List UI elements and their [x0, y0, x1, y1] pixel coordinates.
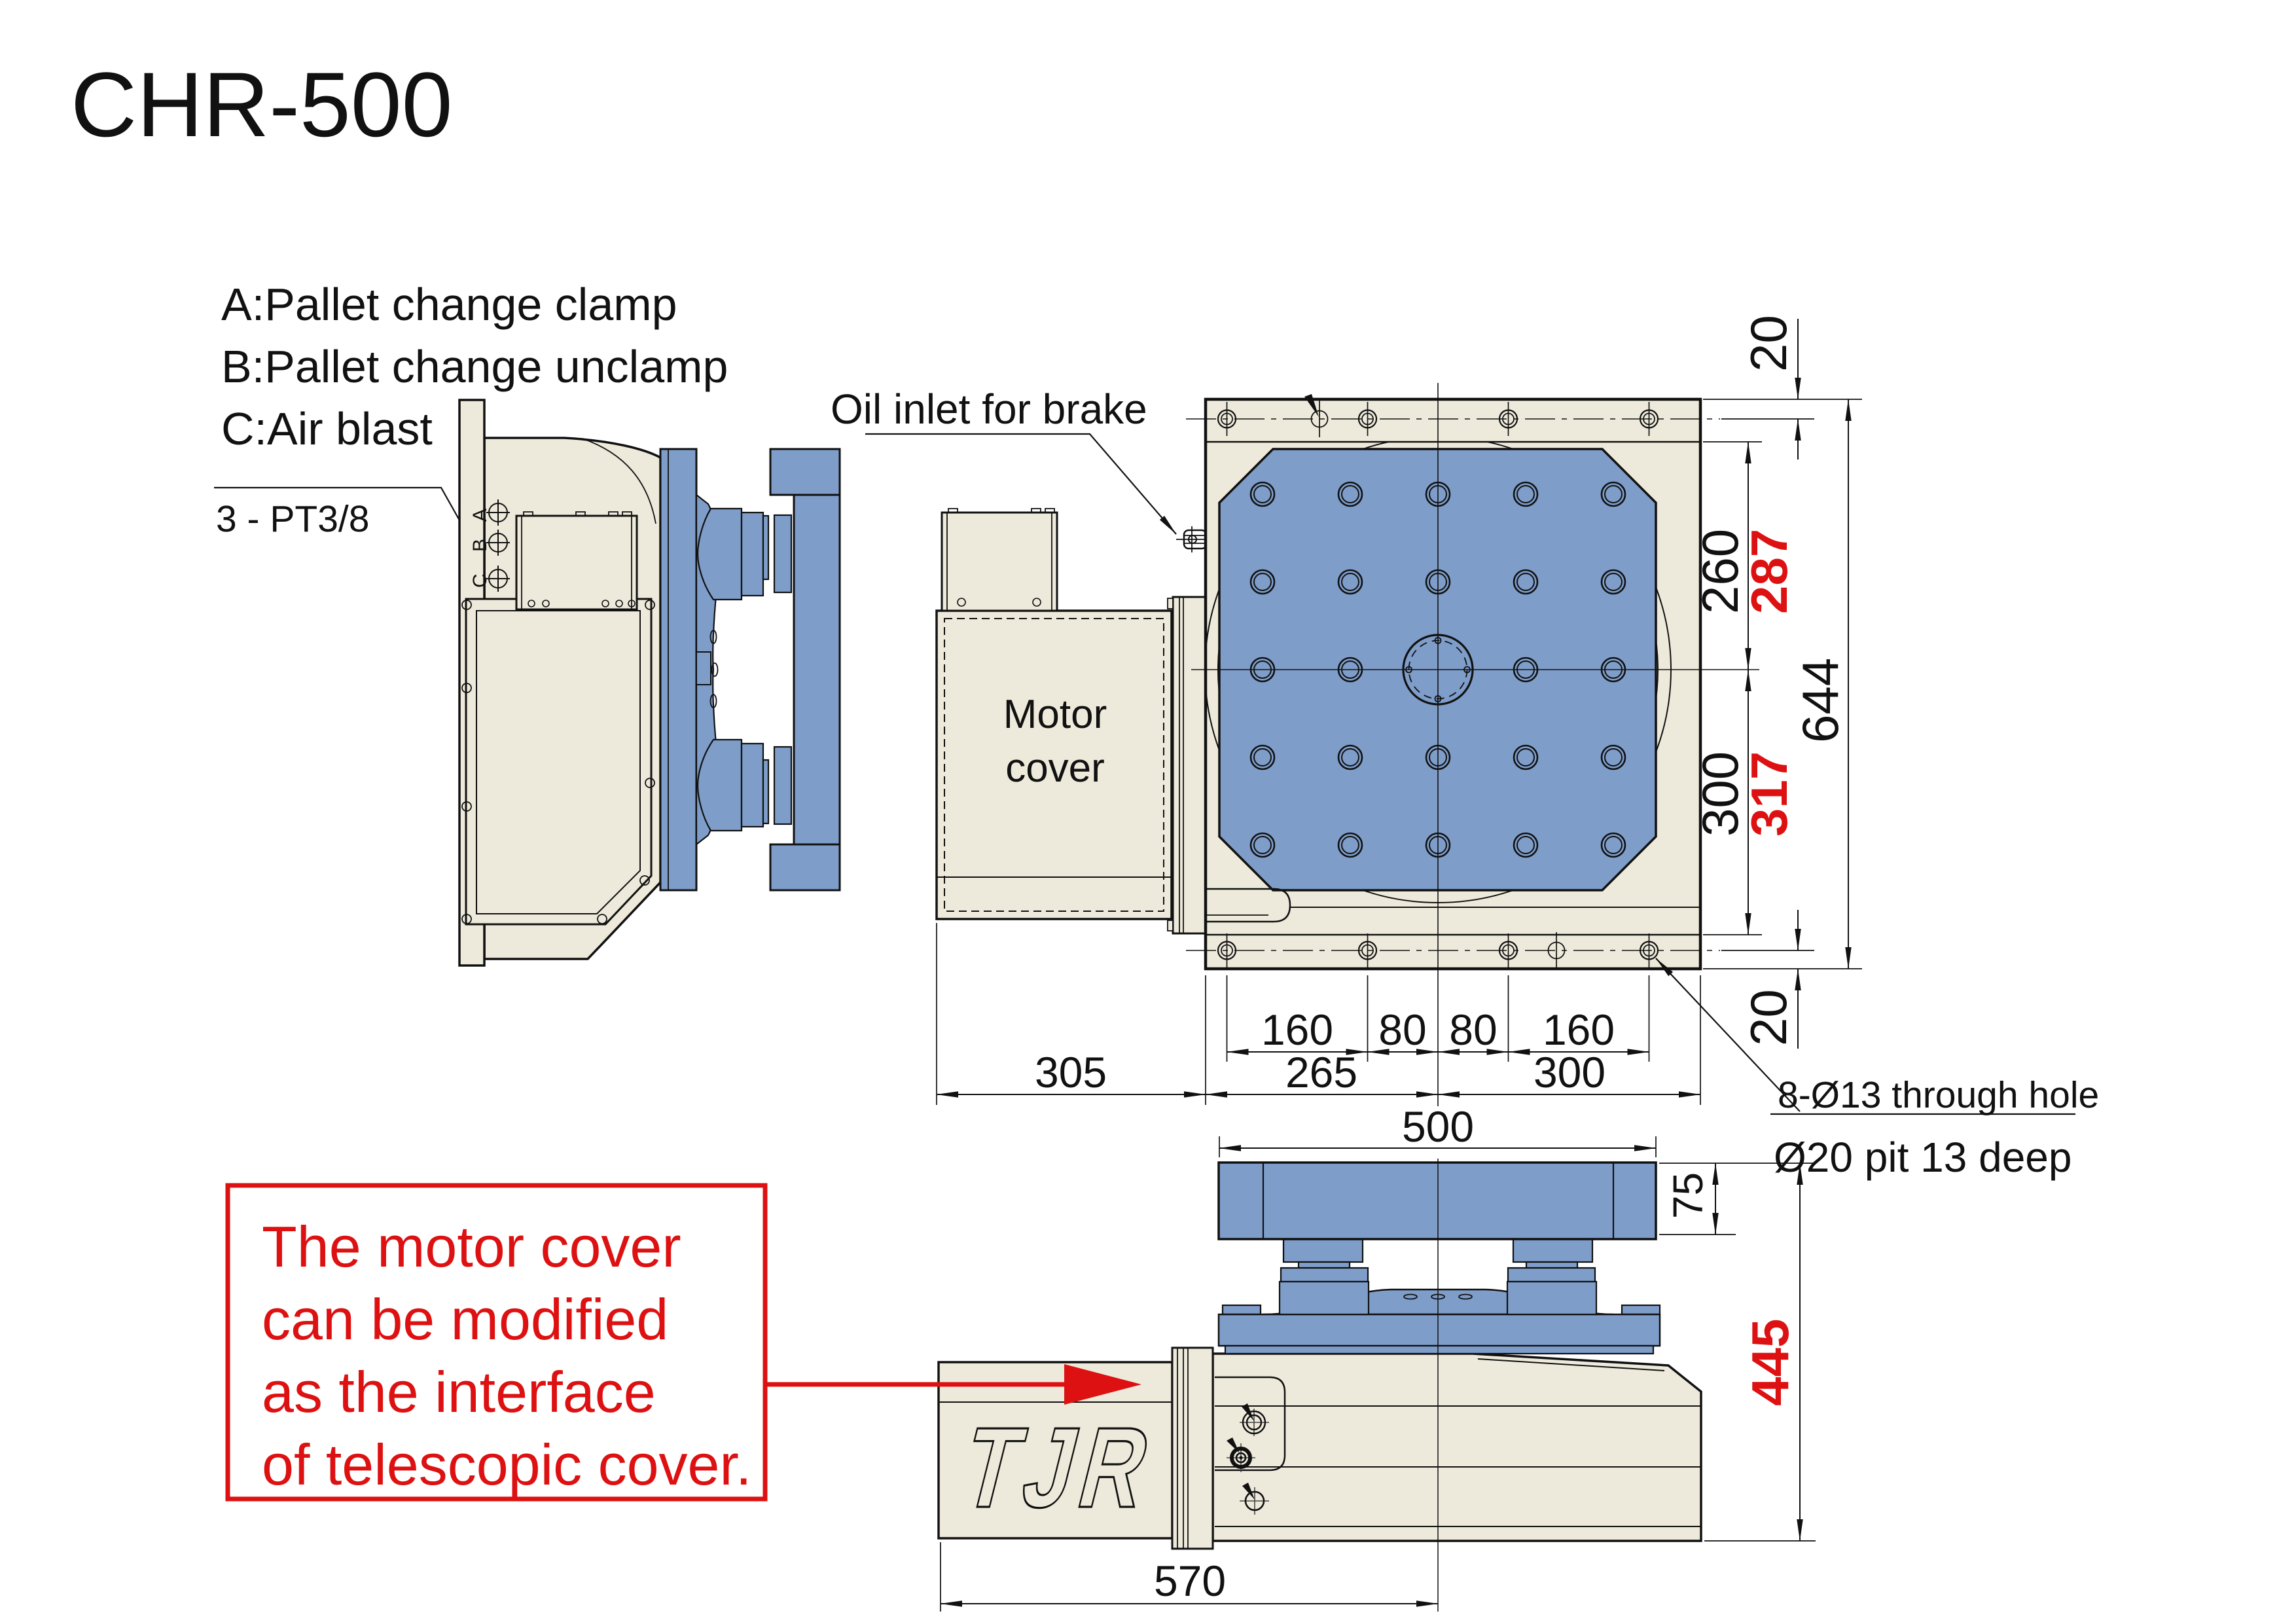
svg-text:570: 570: [1154, 1557, 1226, 1605]
svg-text:B: B: [469, 539, 491, 552]
svg-text:A: A: [469, 509, 491, 522]
svg-text:TJR: TJR: [951, 1404, 1170, 1532]
svg-text:3 - PT3/8: 3 - PT3/8: [216, 498, 369, 540]
svg-text:C: C: [469, 573, 491, 588]
svg-text:644: 644: [1791, 658, 1849, 743]
svg-text:265: 265: [1285, 1048, 1357, 1096]
svg-text:160: 160: [1261, 1005, 1333, 1054]
svg-text:B:Pallet change unclamp: B:Pallet change unclamp: [221, 341, 728, 392]
svg-text:80: 80: [1378, 1005, 1426, 1054]
svg-text:300: 300: [1534, 1048, 1605, 1096]
svg-text:CHR-500: CHR-500: [71, 53, 453, 156]
svg-text:305: 305: [1035, 1048, 1107, 1096]
svg-text:Oil inlet for brake: Oil inlet for brake: [831, 386, 1147, 433]
svg-text:cover: cover: [1005, 746, 1105, 791]
svg-text:75: 75: [1664, 1172, 1712, 1219]
svg-text:500: 500: [1402, 1102, 1474, 1151]
svg-text:8-Ø13 through hole: 8-Ø13 through hole: [1778, 1074, 2099, 1116]
svg-text:Ø20 pit 13 deep: Ø20 pit 13 deep: [1774, 1134, 2072, 1181]
svg-text:317: 317: [1740, 751, 1798, 837]
svg-text:160: 160: [1543, 1005, 1615, 1054]
svg-text:80: 80: [1449, 1005, 1497, 1054]
svg-text:20: 20: [1740, 315, 1797, 372]
svg-text:C:Air blast: C:Air blast: [221, 403, 433, 454]
svg-text:of telescopic cover.: of telescopic cover.: [262, 1432, 751, 1497]
svg-text:Motor: Motor: [1003, 692, 1107, 737]
svg-text:287: 287: [1740, 529, 1798, 614]
svg-text:445: 445: [1741, 1319, 1799, 1406]
svg-text:20: 20: [1740, 989, 1797, 1046]
svg-text:can be modified: can be modified: [262, 1287, 668, 1352]
svg-text:as the interface: as the interface: [262, 1360, 656, 1424]
svg-text:A:Pallet change clamp: A:Pallet change clamp: [221, 279, 677, 330]
svg-text:The motor cover: The motor cover: [262, 1214, 681, 1279]
